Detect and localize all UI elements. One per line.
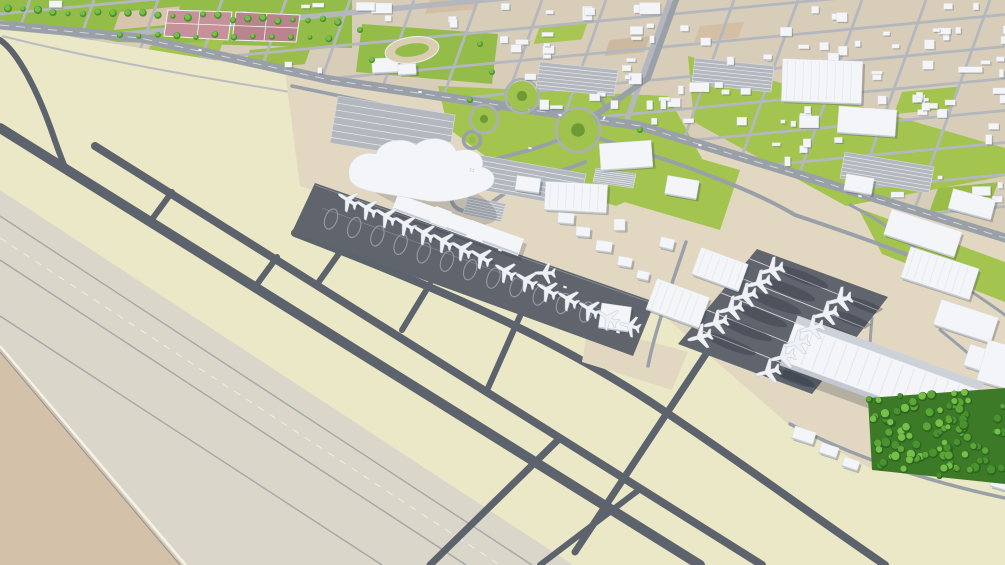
tree — [155, 32, 159, 36]
city-building — [500, 36, 508, 43]
tree — [894, 408, 901, 415]
tree — [961, 389, 968, 396]
building-roof — [599, 140, 653, 170]
tree — [5, 5, 11, 11]
city-building — [837, 13, 847, 22]
city-building — [585, 8, 595, 15]
tree — [965, 398, 970, 403]
city-building — [546, 10, 554, 14]
city-building — [956, 27, 961, 33]
city-building — [650, 36, 655, 43]
city-building — [996, 57, 1004, 62]
city-building — [799, 116, 818, 128]
tree — [944, 444, 951, 451]
tree — [275, 18, 280, 23]
airport-3d-render: 3D aerial map render of an airport distr… — [0, 0, 1005, 565]
tree — [918, 392, 926, 400]
city-building — [312, 3, 323, 7]
tree — [876, 397, 882, 403]
city-building — [737, 117, 747, 125]
city-building — [803, 139, 811, 147]
city-building — [916, 97, 922, 102]
tree — [987, 465, 995, 473]
city-building — [542, 32, 554, 36]
scene-svg: 3D aerial map render of an airport distr… — [0, 0, 1005, 565]
tree — [922, 452, 928, 458]
city-building — [741, 88, 751, 94]
building-roof — [595, 240, 612, 252]
tree — [925, 408, 933, 416]
tree — [876, 446, 883, 453]
tree — [967, 467, 973, 473]
tree — [34, 6, 40, 12]
city-building — [544, 43, 550, 46]
tree — [305, 18, 309, 22]
tree — [954, 439, 961, 446]
tree — [290, 17, 294, 21]
city-building — [651, 118, 657, 124]
landside-building — [575, 226, 592, 239]
tree — [946, 403, 952, 409]
tree — [95, 9, 100, 14]
tree — [940, 464, 947, 471]
city-building — [872, 71, 883, 74]
city-building — [834, 137, 842, 142]
vehicle — [528, 147, 532, 150]
city-building — [986, 135, 992, 145]
city-building — [450, 19, 457, 27]
tree — [110, 10, 115, 15]
city-building — [855, 41, 860, 47]
city-building — [999, 69, 1003, 77]
tree — [320, 16, 325, 21]
tree — [125, 10, 130, 15]
city-building — [625, 75, 630, 79]
city-building — [680, 25, 688, 31]
city-building — [973, 3, 978, 10]
city-building — [630, 26, 643, 34]
tree — [906, 456, 913, 463]
building-roof — [576, 226, 591, 236]
tree — [200, 11, 204, 15]
city-building — [385, 15, 391, 21]
tree — [912, 440, 920, 448]
city-building — [1001, 36, 1005, 44]
roundabout-center — [480, 115, 488, 123]
city-building — [525, 74, 536, 80]
tree — [185, 14, 191, 20]
tree — [885, 429, 892, 436]
tree — [891, 452, 899, 460]
city-building — [891, 192, 904, 197]
tree — [909, 398, 916, 405]
tree — [951, 391, 957, 397]
tree — [897, 393, 902, 398]
landside-building — [837, 106, 899, 139]
city-building — [922, 103, 930, 111]
tree — [369, 57, 373, 61]
city-building — [1000, 95, 1005, 104]
tree — [959, 420, 967, 428]
city-building — [791, 121, 796, 127]
city-building — [647, 101, 653, 110]
tree — [212, 31, 217, 36]
city-building — [764, 54, 772, 59]
city-building — [626, 58, 635, 62]
city-building — [678, 86, 683, 94]
city-building — [781, 120, 785, 123]
city-building — [883, 31, 890, 35]
tree — [902, 423, 910, 431]
tree — [995, 429, 1001, 435]
city-building — [715, 82, 723, 88]
tree — [477, 41, 481, 45]
city-building — [998, 182, 1003, 188]
tree — [174, 32, 179, 37]
building-roof — [558, 212, 575, 223]
tree — [260, 14, 266, 20]
city-building — [589, 94, 599, 101]
landside-building — [398, 63, 419, 77]
roundabout-center — [571, 123, 585, 137]
tree — [937, 407, 943, 413]
city-building — [944, 3, 953, 9]
tree — [946, 417, 953, 424]
tree — [637, 127, 641, 131]
city-building — [772, 143, 780, 146]
tree — [954, 465, 960, 471]
tree — [923, 422, 931, 430]
tree — [467, 97, 471, 101]
vehicle — [418, 91, 422, 94]
tree — [881, 409, 889, 417]
tree — [117, 32, 121, 36]
city-building — [872, 75, 881, 80]
tree — [955, 405, 963, 413]
city-building — [701, 38, 711, 46]
tree — [906, 433, 912, 439]
city-building — [938, 176, 943, 179]
tree — [880, 459, 887, 466]
city-building — [689, 83, 709, 92]
city-building — [981, 61, 990, 65]
tree — [194, 35, 198, 39]
tree — [927, 390, 935, 398]
city-building — [640, 3, 661, 14]
tree — [245, 15, 250, 20]
tree — [230, 17, 235, 22]
traffic-circle-lawn — [469, 137, 476, 144]
landside-building — [557, 212, 577, 226]
tree — [215, 12, 220, 17]
tree — [946, 424, 951, 429]
tree — [171, 13, 175, 17]
tree — [900, 466, 906, 472]
tree — [21, 6, 25, 10]
city-building — [550, 105, 562, 108]
city-building — [924, 40, 934, 49]
tree — [140, 9, 145, 14]
city-building — [727, 57, 734, 65]
tree — [901, 404, 909, 412]
city-building — [923, 61, 934, 69]
building-roof — [398, 64, 416, 75]
tree — [882, 438, 890, 446]
city-building — [631, 37, 641, 40]
tree — [898, 434, 905, 441]
city-building — [930, 103, 938, 108]
landside-building — [599, 140, 655, 172]
tree — [998, 465, 1005, 472]
city-building — [933, 28, 940, 31]
city-building — [501, 3, 509, 9]
city-building — [878, 96, 886, 104]
tree — [929, 448, 937, 456]
tree — [137, 34, 141, 38]
tree — [231, 34, 236, 39]
city-building — [661, 99, 666, 109]
landside-building — [781, 59, 865, 106]
city-building — [318, 67, 322, 73]
tree — [269, 34, 273, 38]
tree — [982, 447, 989, 454]
city-building — [683, 119, 694, 123]
city-building — [924, 98, 928, 101]
building-roof — [837, 106, 897, 136]
tree — [357, 27, 361, 31]
city-building — [937, 109, 947, 118]
tree — [326, 36, 331, 41]
city-building — [988, 123, 998, 129]
city-building — [511, 45, 521, 52]
tree — [66, 11, 70, 15]
tree — [335, 19, 340, 24]
city-building — [49, 1, 62, 8]
tree — [489, 69, 493, 73]
tree — [964, 434, 971, 441]
vehicle-body — [558, 114, 562, 117]
city-building — [972, 187, 990, 196]
tree — [50, 9, 55, 14]
tree — [936, 473, 941, 478]
tree — [945, 451, 953, 459]
tree — [887, 419, 893, 425]
city-building — [540, 100, 549, 110]
tree — [994, 415, 1001, 422]
tree — [251, 34, 255, 38]
tree — [155, 12, 160, 17]
tree — [866, 396, 871, 401]
city-building — [722, 90, 730, 95]
city-building — [958, 67, 982, 73]
landside-building — [544, 181, 610, 215]
tree — [874, 439, 881, 446]
city-building — [646, 24, 653, 28]
city-building — [812, 6, 819, 13]
tree — [308, 35, 311, 38]
tree — [870, 416, 877, 423]
city-building — [301, 5, 309, 8]
roundabout-center — [517, 91, 527, 101]
tree — [962, 451, 969, 458]
city-building — [804, 106, 810, 113]
vehicle-body — [418, 91, 422, 94]
tree — [935, 419, 943, 427]
city-building — [798, 45, 809, 49]
tree-grove — [866, 388, 1005, 484]
city-building — [785, 157, 791, 166]
vehicle — [558, 114, 562, 117]
tree — [951, 398, 957, 404]
city-building — [945, 100, 955, 105]
city-building — [356, 2, 374, 10]
vehicle-body — [528, 147, 532, 150]
city-building — [892, 44, 899, 48]
city-building — [820, 42, 829, 50]
tree — [80, 11, 85, 16]
city-building — [993, 88, 1005, 94]
city-building — [780, 27, 791, 36]
building-roof — [614, 219, 625, 230]
tree — [1000, 404, 1005, 409]
city-building — [611, 100, 618, 108]
tree — [898, 446, 904, 452]
city-building — [838, 46, 847, 55]
tree — [970, 443, 976, 449]
city-building — [516, 40, 529, 45]
tree — [977, 458, 983, 464]
tree — [288, 34, 292, 38]
landside-building — [595, 240, 615, 255]
city-building — [285, 62, 292, 67]
city-building — [622, 65, 631, 71]
